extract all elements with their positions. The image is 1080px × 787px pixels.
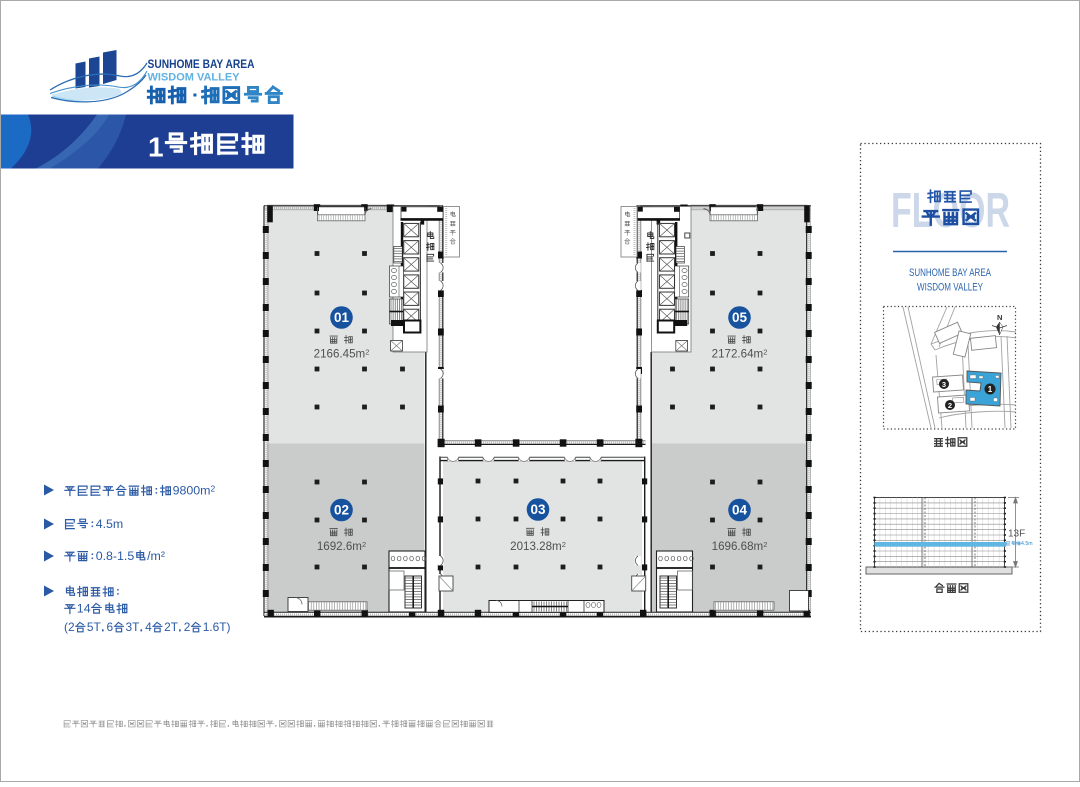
svg-text:4.5m: 4.5m [1021, 541, 1033, 547]
svg-text:13F: 13F [1008, 529, 1025, 540]
svg-text:0.8-1.5: 0.8-1.5 [96, 549, 135, 563]
svg-text:2: 2 [948, 401, 952, 410]
svg-text:14: 14 [77, 601, 91, 615]
svg-text:WISDOM VALLEY: WISDOM VALLEY [917, 282, 983, 294]
svg-text:1692.6m2: 1692.6m2 [317, 540, 366, 553]
svg-text:2166.45m2: 2166.45m2 [314, 347, 370, 360]
svg-text:SUNHOME BAY AREA: SUNHOME BAY AREA [909, 267, 991, 279]
svg-text:03: 03 [530, 502, 546, 517]
svg-text:WISDOM VALLEY: WISDOM VALLEY [148, 72, 241, 84]
svg-text:02: 02 [334, 503, 349, 518]
svg-text:6: 6 [107, 620, 114, 634]
svg-text:04: 04 [732, 503, 748, 518]
svg-text:1: 1 [988, 385, 993, 394]
svg-text:4.5m: 4.5m [96, 517, 124, 531]
svg-text:05: 05 [732, 310, 748, 325]
svg-text:3: 3 [942, 380, 946, 389]
svg-text:(2: (2 [64, 620, 75, 634]
svg-text:3T: 3T [126, 620, 140, 634]
svg-text:N: N [997, 313, 1002, 322]
svg-text:1: 1 [148, 132, 164, 163]
svg-text:2: 2 [184, 620, 191, 634]
svg-text:1696.68m2: 1696.68m2 [712, 540, 768, 553]
svg-text:9800m2: 9800m2 [173, 483, 216, 497]
svg-text:2013.28m2: 2013.28m2 [510, 540, 566, 553]
svg-text:2T: 2T [164, 620, 178, 634]
svg-text:2172.64m2: 2172.64m2 [712, 347, 768, 360]
svg-text:SUNHOME BAY AREA: SUNHOME BAY AREA [148, 59, 255, 71]
svg-text:4: 4 [145, 620, 152, 634]
svg-text:01: 01 [334, 310, 350, 325]
svg-text:/m²: /m² [147, 549, 165, 563]
svg-text:5T: 5T [87, 620, 101, 634]
svg-text:1.6T): 1.6T) [203, 620, 231, 634]
